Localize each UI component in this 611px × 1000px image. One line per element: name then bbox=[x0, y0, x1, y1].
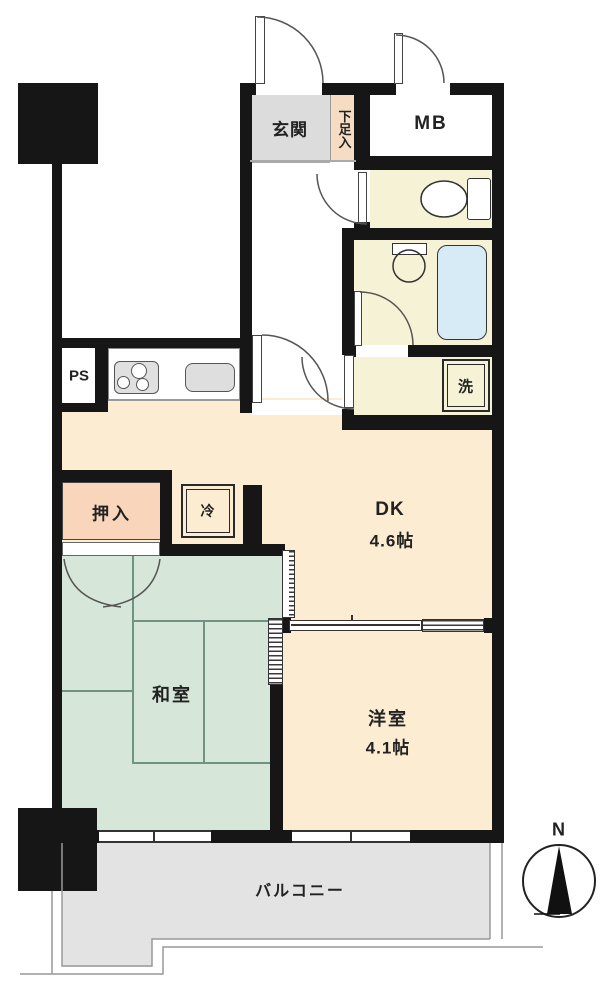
washitsu-window bbox=[99, 830, 211, 843]
room-washitsu-label: 和室 bbox=[152, 681, 192, 707]
ps-bottom-wall bbox=[52, 403, 108, 412]
ps-right-wall bbox=[95, 348, 108, 403]
tatami-line bbox=[132, 620, 282, 622]
room-genkan-label: 玄関 bbox=[272, 116, 308, 141]
room-oshiire-label: 押入 bbox=[92, 500, 132, 525]
washroom-door-leaf bbox=[344, 355, 354, 408]
floor-plan: 玄関 下足入 MB PS 洗 押入 冷 DK 4.6帖 和室 洋室 4.1帖 バ… bbox=[0, 0, 611, 1000]
hall-dk-threshold bbox=[252, 400, 342, 415]
mb-door-arc bbox=[396, 35, 444, 83]
entry-door-arc bbox=[257, 17, 323, 83]
washing-machine-label: 洗 bbox=[458, 376, 474, 397]
bath-door-leaf bbox=[354, 291, 362, 346]
closet-door-strip bbox=[62, 542, 160, 556]
room-youshitsu-size-label: 4.1帖 bbox=[366, 734, 411, 759]
sliding-door-tick bbox=[351, 615, 353, 621]
refrigerator-label: 冷 bbox=[201, 501, 216, 521]
toilet-door-leaf bbox=[358, 172, 367, 223]
entry-door-leaf bbox=[255, 16, 265, 84]
stove-burner-icon bbox=[117, 376, 130, 389]
washitsu-youshitsu-sliding-door bbox=[268, 618, 283, 685]
stove-burner-icon bbox=[136, 378, 149, 391]
oshiire-top-wall bbox=[52, 470, 172, 482]
stove-burner-icon bbox=[131, 363, 147, 379]
genkan-step-line bbox=[250, 160, 356, 162]
kitchen-sink-icon bbox=[185, 363, 235, 392]
bath-door-opening bbox=[356, 345, 408, 357]
window-tick bbox=[350, 830, 352, 843]
tatami-line bbox=[62, 690, 132, 692]
hall-left-wall bbox=[240, 83, 252, 413]
mb-door-leaf bbox=[394, 33, 403, 84]
room-mb-label: MB bbox=[414, 113, 448, 135]
partition-wall-stub bbox=[484, 618, 492, 633]
bath-sink-counter-icon bbox=[392, 243, 427, 255]
dk-youshitsu-screen-panel bbox=[422, 619, 484, 632]
washitsu-east-wall bbox=[270, 684, 283, 832]
ps-label: PS bbox=[69, 368, 89, 385]
room-dk-size-label: 4.6帖 bbox=[370, 527, 415, 552]
toilet-bottom-wall bbox=[354, 228, 492, 240]
mb-toilet-divider-wall bbox=[370, 156, 492, 170]
toilet-tank-icon bbox=[467, 178, 491, 220]
compass-north-needle-icon bbox=[547, 846, 572, 914]
room-youshitsu-label: 洋室 bbox=[368, 705, 408, 731]
tatami-line bbox=[132, 556, 134, 762]
washroom-bottom-wall bbox=[342, 415, 504, 430]
hall-dk-door-leaf bbox=[252, 335, 262, 403]
west-wall bbox=[52, 164, 62, 808]
mb-door-opening bbox=[396, 83, 450, 95]
tatami-line bbox=[132, 762, 282, 764]
entry-door-opening bbox=[256, 83, 322, 95]
compass-north-label: N bbox=[552, 820, 566, 841]
pillar-bottom-left bbox=[18, 808, 97, 891]
room-dk-label: DK bbox=[375, 499, 404, 521]
bathtub-icon bbox=[437, 245, 487, 340]
washitsu-top-wall bbox=[160, 544, 285, 556]
window-tick bbox=[153, 830, 155, 843]
washitsu-dk-sliding-door bbox=[282, 550, 295, 618]
sliding-door-rail-line bbox=[291, 624, 420, 626]
east-wall bbox=[492, 83, 504, 843]
kitchen-top-wall bbox=[52, 338, 252, 348]
pillar-top-left bbox=[18, 83, 98, 164]
balcony-label: バルコニー bbox=[255, 877, 345, 901]
balcony-floor-step bbox=[62, 939, 152, 967]
tatami-line bbox=[203, 620, 205, 764]
shoe-storage-label: 下足入 bbox=[335, 110, 354, 149]
compass-circle bbox=[523, 845, 595, 917]
